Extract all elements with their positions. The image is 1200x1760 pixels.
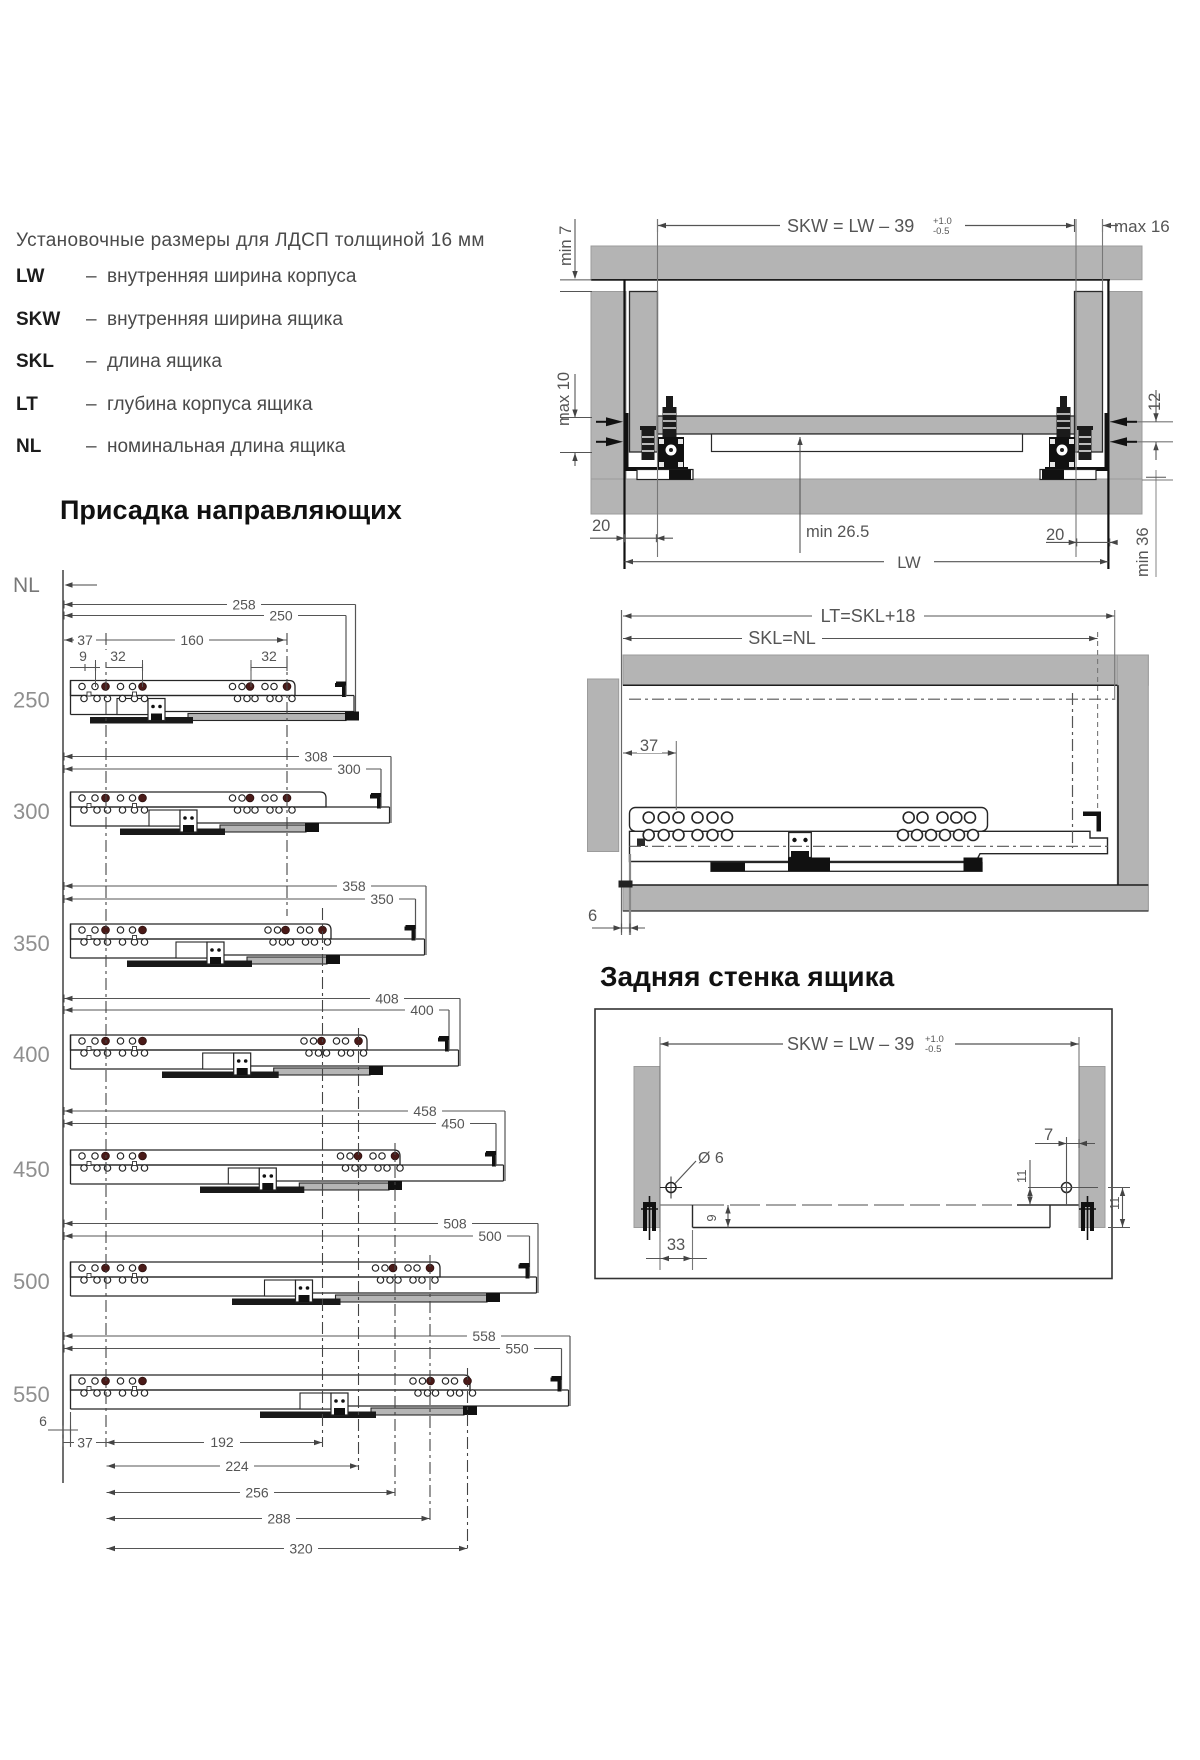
svg-text:32: 32 [261, 648, 277, 664]
svg-text:37: 37 [77, 632, 93, 648]
svg-text:250: 250 [13, 688, 50, 713]
svg-text:min 36: min 36 [1134, 527, 1152, 577]
svg-text:NL: NL [13, 574, 40, 597]
svg-text:LW: LW [897, 554, 921, 572]
svg-text:9: 9 [79, 648, 87, 664]
svg-text:550: 550 [13, 1382, 50, 1407]
svg-text:min 7: min 7 [557, 226, 575, 266]
svg-text:458: 458 [413, 1103, 437, 1119]
svg-text:408: 408 [375, 991, 399, 1007]
svg-text:450: 450 [13, 1157, 50, 1182]
svg-text:308: 308 [304, 749, 328, 765]
svg-text:320: 320 [289, 1541, 313, 1557]
svg-text:550: 550 [505, 1341, 529, 1357]
svg-text:6: 6 [39, 1413, 47, 1429]
svg-text:SKL=NL: SKL=NL [748, 628, 816, 648]
svg-text:LT=SKL+18: LT=SKL+18 [821, 606, 916, 626]
svg-text:Ø 6: Ø 6 [698, 1150, 724, 1167]
svg-text:508: 508 [443, 1216, 467, 1232]
svg-text:250: 250 [269, 608, 293, 624]
svg-text:37: 37 [77, 1435, 93, 1451]
svg-text:224: 224 [225, 1458, 249, 1474]
svg-text:11: 11 [1014, 1170, 1029, 1184]
svg-text:SKW = LW – 39: SKW = LW – 39 [787, 1034, 914, 1054]
svg-text:37: 37 [640, 737, 658, 755]
svg-text:32: 32 [110, 648, 126, 664]
svg-text:400: 400 [13, 1042, 50, 1067]
svg-text:-0.5: -0.5 [933, 226, 949, 237]
svg-text:558: 558 [472, 1328, 496, 1344]
svg-text:288: 288 [267, 1511, 291, 1527]
svg-text:min 26.5: min 26.5 [806, 523, 869, 541]
svg-text:258: 258 [232, 597, 256, 613]
svg-text:20: 20 [592, 517, 610, 535]
svg-text:192: 192 [210, 1434, 234, 1450]
svg-text:12: 12 [1146, 393, 1164, 411]
svg-text:160: 160 [180, 632, 204, 648]
svg-text:-0.5: -0.5 [925, 1044, 941, 1055]
svg-text:300: 300 [13, 799, 50, 824]
svg-text:350: 350 [370, 891, 394, 907]
svg-text:300: 300 [337, 761, 361, 777]
svg-text:400: 400 [410, 1002, 434, 1018]
svg-text:7: 7 [1044, 1126, 1053, 1144]
svg-text:500: 500 [13, 1269, 50, 1294]
svg-text:max 16: max 16 [1114, 217, 1170, 236]
svg-text:33: 33 [667, 1236, 685, 1254]
svg-text:9: 9 [704, 1214, 719, 1221]
svg-text:11: 11 [1107, 1197, 1122, 1211]
svg-text:20: 20 [1046, 526, 1064, 544]
svg-text:450: 450 [441, 1116, 465, 1132]
svg-text:358: 358 [342, 878, 366, 894]
svg-text:SKW = LW – 39: SKW = LW – 39 [787, 216, 914, 236]
svg-text:500: 500 [478, 1228, 502, 1244]
svg-text:350: 350 [13, 931, 50, 956]
svg-text:6: 6 [588, 907, 597, 925]
svg-text:256: 256 [245, 1485, 269, 1501]
